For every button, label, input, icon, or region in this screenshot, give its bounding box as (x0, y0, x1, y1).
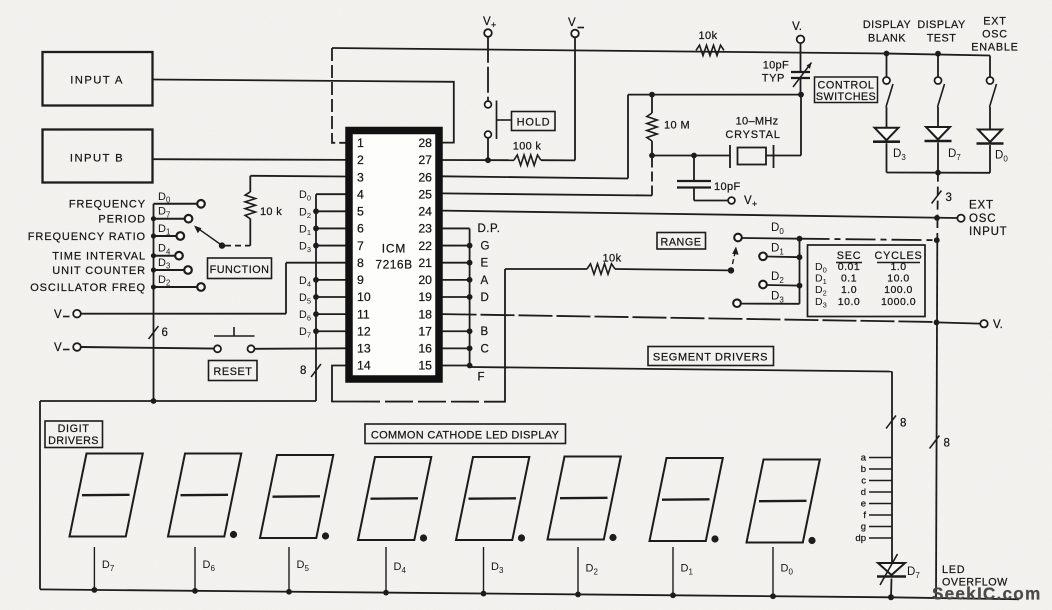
svg-text:22: 22 (418, 239, 432, 253)
svg-text:INPUT A: INPUT A (70, 75, 124, 87)
svg-text:13: 13 (357, 342, 371, 356)
svg-text:b: b (861, 464, 866, 475)
svg-text:6: 6 (162, 327, 168, 339)
svg-text:10k: 10k (699, 30, 718, 42)
svg-text:V: V (568, 17, 576, 29)
svg-text:C: C (481, 343, 490, 355)
svg-text:V: V (54, 309, 62, 321)
svg-text:TEST: TEST (927, 33, 957, 45)
svg-text:CRYSTAL: CRYSTAL (725, 129, 780, 141)
svg-text:V.: V. (792, 21, 802, 33)
svg-text:BLANK: BLANK (868, 33, 906, 45)
svg-text:10.0: 10.0 (887, 273, 909, 285)
svg-text:RANGE: RANGE (661, 236, 702, 248)
svg-text:LED: LED (942, 564, 965, 576)
svg-text:UNIT COUNTER: UNIT COUNTER (52, 265, 146, 277)
svg-text:1: 1 (357, 136, 364, 150)
svg-text:10k: 10k (603, 253, 622, 265)
svg-text:e: e (861, 499, 866, 510)
svg-text:+: + (491, 20, 496, 30)
svg-text:FUNCTION: FUNCTION (210, 264, 270, 276)
svg-text:D: D (481, 292, 490, 304)
svg-text:100 k: 100 k (513, 141, 542, 153)
svg-text:V: V (54, 342, 62, 354)
svg-text:HOLD: HOLD (517, 117, 551, 129)
svg-text:DISPLAY: DISPLAY (863, 19, 911, 31)
svg-text:c: c (861, 476, 866, 487)
svg-text:8: 8 (944, 438, 950, 450)
svg-text:17: 17 (418, 324, 432, 338)
svg-text:10 M: 10 M (664, 120, 690, 132)
svg-text:FREQUENCY RATIO: FREQUENCY RATIO (28, 231, 146, 243)
svg-text:V: V (744, 195, 752, 207)
svg-text:DISPLAY: DISPLAY (917, 19, 965, 31)
svg-text:5: 5 (357, 205, 364, 219)
svg-text:16: 16 (418, 342, 432, 356)
svg-text:SeekIC.com: SeekIC.com (932, 584, 1041, 604)
svg-text:RESET: RESET (214, 366, 253, 378)
svg-text:23: 23 (418, 222, 432, 236)
svg-text:10.0: 10.0 (838, 296, 860, 308)
svg-text:CONTROL: CONTROL (818, 80, 875, 92)
svg-text:ENABLE: ENABLE (971, 42, 1018, 54)
svg-text:1.0: 1.0 (841, 284, 857, 296)
svg-text:25: 25 (418, 187, 432, 201)
svg-text:PERIOD: PERIOD (98, 214, 146, 226)
svg-text:1.0: 1.0 (890, 261, 906, 273)
svg-text:DIGIT: DIGIT (58, 423, 90, 435)
svg-text:10–MHz: 10–MHz (736, 116, 779, 128)
svg-text:1000.0: 1000.0 (881, 296, 916, 308)
svg-text:V.: V. (993, 319, 1003, 331)
svg-text:a: a (861, 453, 867, 464)
svg-text:E: E (481, 258, 489, 270)
svg-text:OSC: OSC (969, 213, 996, 225)
svg-text:3: 3 (946, 192, 952, 204)
svg-text:7: 7 (357, 239, 364, 253)
svg-text:COMMON CATHODE LED DISPLAY: COMMON CATHODE LED DISPLAY (371, 430, 560, 442)
svg-text:3: 3 (357, 170, 364, 184)
svg-text:OSCILLATOR FREQ: OSCILLATOR FREQ (30, 282, 146, 294)
svg-text:d: d (861, 487, 866, 498)
svg-text:FREQUENCY: FREQUENCY (69, 199, 146, 211)
svg-text:8: 8 (357, 256, 364, 270)
svg-text:6: 6 (357, 222, 364, 236)
svg-text:V: V (483, 16, 491, 28)
svg-text:EXT: EXT (969, 200, 994, 212)
svg-text:G: G (481, 241, 490, 253)
svg-text:TYP: TYP (762, 73, 785, 85)
svg-text:8: 8 (300, 365, 306, 377)
svg-text:27: 27 (418, 153, 432, 167)
svg-text:0.01: 0.01 (838, 261, 860, 273)
svg-text:DRIVERS: DRIVERS (48, 435, 99, 447)
svg-text:dp: dp (855, 533, 866, 544)
svg-text:EXT: EXT (983, 16, 1006, 28)
svg-text:14: 14 (357, 359, 371, 373)
svg-text:B: B (481, 326, 489, 338)
svg-text:f: f (863, 510, 866, 521)
svg-text:9: 9 (357, 273, 364, 287)
svg-text:ICM: ICM (382, 242, 406, 256)
svg-text:26: 26 (418, 170, 432, 184)
svg-text:D.P.: D.P. (478, 223, 501, 235)
svg-text:19: 19 (418, 290, 432, 304)
svg-text:21: 21 (418, 256, 432, 270)
svg-text:TIME INTERVAL: TIME INTERVAL (52, 251, 146, 263)
svg-text:2: 2 (357, 153, 364, 167)
svg-text:g: g (861, 522, 866, 533)
svg-text:8: 8 (900, 418, 906, 430)
svg-text:11: 11 (357, 307, 370, 321)
svg-text:INPUT: INPUT (969, 226, 1008, 238)
svg-text:0.1: 0.1 (841, 273, 857, 285)
svg-text:12: 12 (357, 324, 371, 338)
svg-text:4: 4 (357, 187, 364, 201)
svg-text:10 k: 10 k (260, 206, 282, 218)
svg-text:10pF: 10pF (714, 181, 741, 193)
svg-text:20: 20 (418, 273, 432, 287)
svg-text:28: 28 (418, 136, 432, 150)
svg-text:A: A (481, 275, 489, 287)
svg-text:24: 24 (418, 205, 432, 219)
svg-text:18: 18 (418, 307, 432, 321)
svg-text:7216B: 7216B (375, 258, 412, 272)
svg-text:15: 15 (418, 359, 432, 373)
svg-text:SWITCHES: SWITCHES (816, 91, 876, 103)
svg-text:10pF: 10pF (763, 60, 789, 72)
svg-text:10: 10 (357, 290, 371, 304)
svg-text:INPUT B: INPUT B (70, 153, 124, 165)
svg-text:100.0: 100.0 (884, 284, 913, 296)
svg-text:OSC: OSC (982, 29, 1008, 41)
svg-text:F: F (478, 372, 486, 384)
svg-text:SEGMENT DRIVERS: SEGMENT DRIVERS (653, 352, 768, 364)
svg-text:+: + (752, 199, 757, 209)
